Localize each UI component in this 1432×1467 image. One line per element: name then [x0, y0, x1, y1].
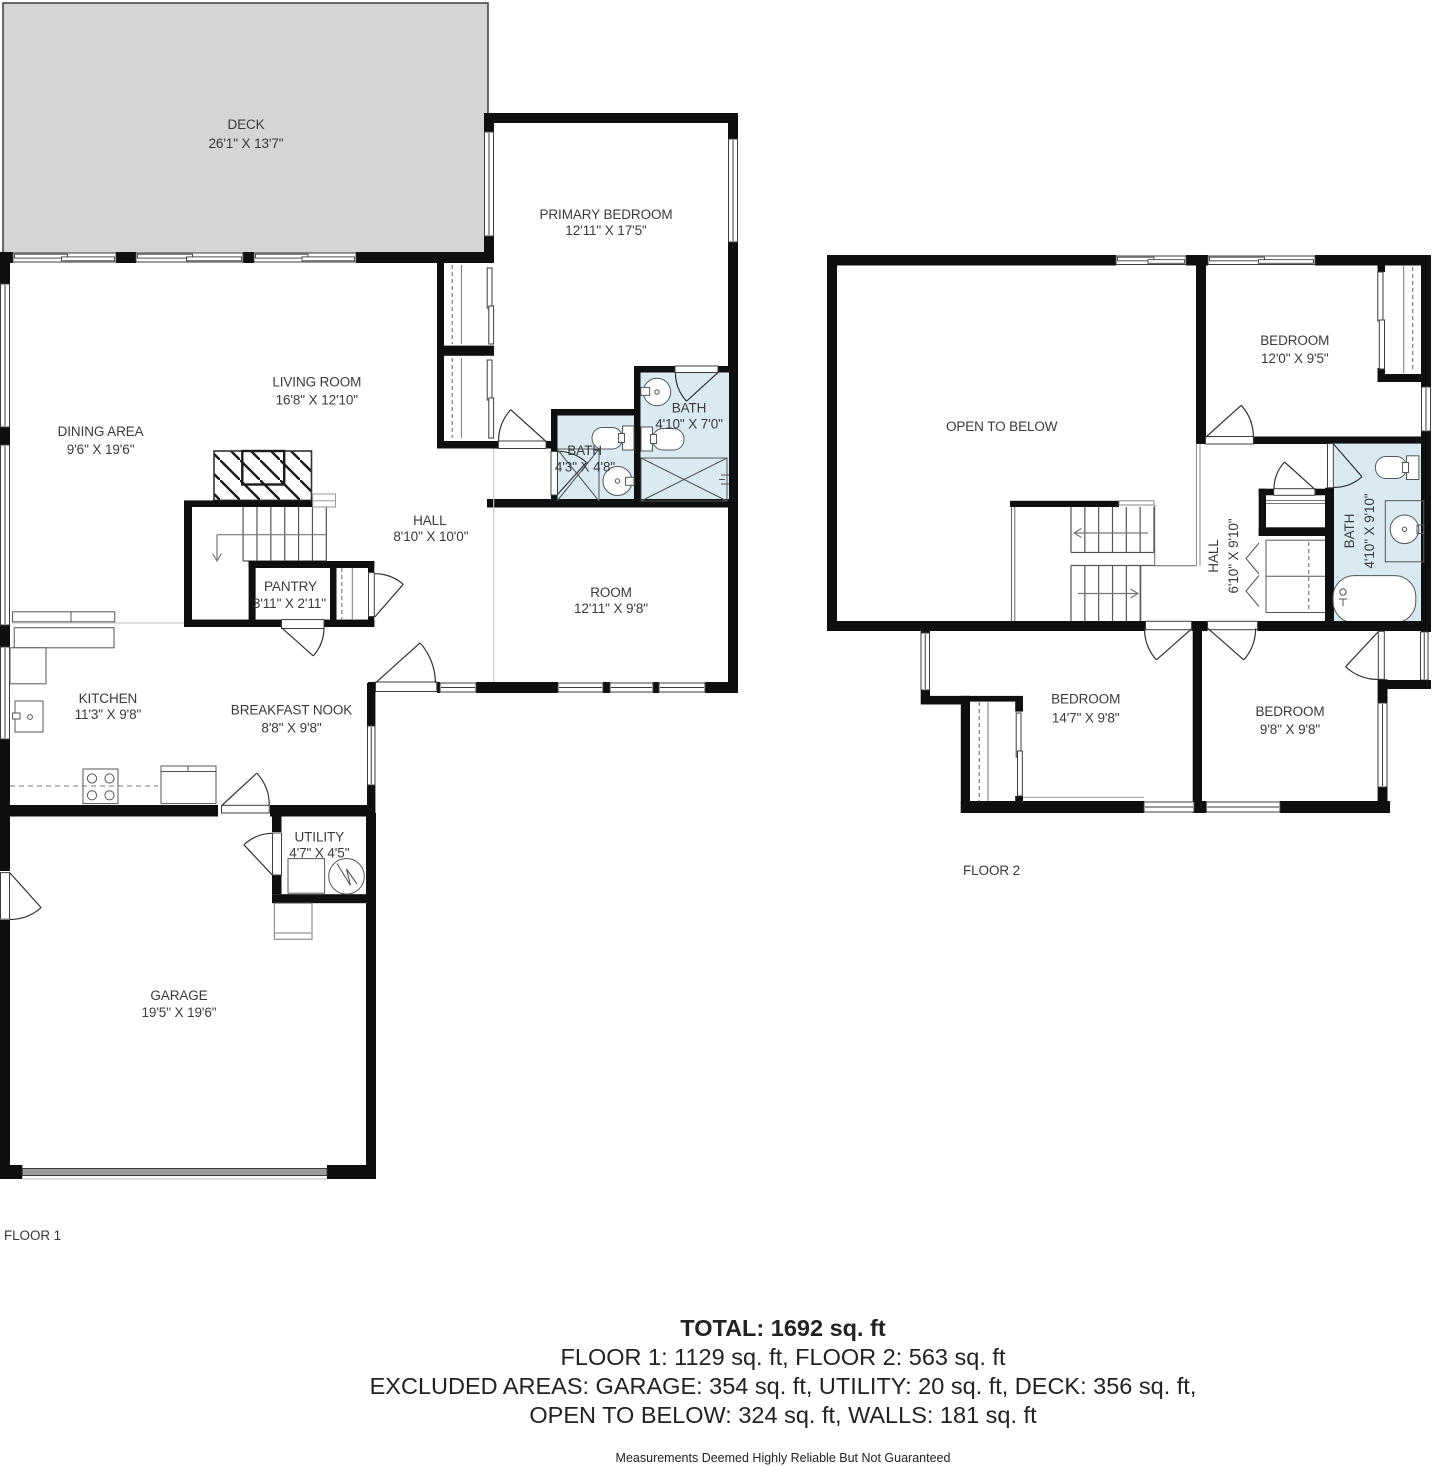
svg-text:ROOM: ROOM: [590, 585, 632, 600]
svg-text:DECK: DECK: [227, 117, 264, 132]
svg-text:12'0" X 9'5": 12'0" X 9'5": [1261, 351, 1329, 366]
svg-text:12'11" X 17'5": 12'11" X 17'5": [565, 223, 647, 238]
svg-text:FLOOR 1: 1129 sq. ft, FLOOR 2:: FLOOR 1: 1129 sq. ft, FLOOR 2: 563 sq. f…: [561, 1344, 1006, 1370]
svg-text:4'7" X 4'5": 4'7" X 4'5": [289, 846, 349, 861]
svg-text:EXCLUDED AREAS: GARAGE: 354 sq: EXCLUDED AREAS: GARAGE: 354 sq. ft, UTIL…: [370, 1373, 1197, 1399]
svg-text:PRIMARY BEDROOM: PRIMARY BEDROOM: [539, 207, 672, 222]
svg-text:19'5" X 19'6": 19'5" X 19'6": [142, 1005, 217, 1020]
svg-text:BEDROOM: BEDROOM: [1051, 692, 1120, 707]
svg-text:HALL: HALL: [1206, 539, 1221, 573]
svg-text:FLOOR 2: FLOOR 2: [963, 863, 1020, 878]
svg-text:BREAKFAST NOOK: BREAKFAST NOOK: [231, 703, 352, 718]
svg-text:UTILITY: UTILITY: [295, 830, 345, 845]
svg-text:8'10" X 10'0": 8'10" X 10'0": [393, 529, 468, 544]
svg-text:BATH: BATH: [672, 401, 707, 416]
svg-text:BATH: BATH: [1342, 514, 1357, 549]
svg-text:26'1" X 13'7": 26'1" X 13'7": [209, 136, 284, 151]
svg-text:BEDROOM: BEDROOM: [1260, 333, 1329, 348]
svg-text:9'8" X 9'8": 9'8" X 9'8": [1260, 722, 1320, 737]
svg-text:4'10" X 7'0": 4'10" X 7'0": [655, 417, 723, 432]
svg-text:16'8" X 12'10": 16'8" X 12'10": [276, 393, 359, 408]
svg-text:LIVING ROOM: LIVING ROOM: [272, 375, 361, 390]
svg-text:8'8" X 9'8": 8'8" X 9'8": [261, 721, 321, 736]
svg-text:4'10" X 9'10": 4'10" X 9'10": [1362, 493, 1377, 568]
svg-text:OPEN TO BELOW: 324 sq. ft, WAL: OPEN TO BELOW: 324 sq. ft, WALLS: 181 sq…: [529, 1402, 1037, 1428]
svg-text:FLOOR 1: FLOOR 1: [4, 1228, 61, 1243]
svg-text:DINING AREA: DINING AREA: [58, 424, 144, 439]
svg-text:OPEN TO BELOW: OPEN TO BELOW: [946, 419, 1058, 434]
svg-text:11'3" X 9'8": 11'3" X 9'8": [75, 707, 142, 722]
svg-text:BATH: BATH: [567, 443, 602, 458]
svg-text:14'7" X 9'8": 14'7" X 9'8": [1052, 711, 1120, 726]
svg-text:3'11" X 2'11": 3'11" X 2'11": [253, 596, 326, 611]
svg-text:TOTAL: 1692 sq. ft: TOTAL: 1692 sq. ft: [680, 1315, 886, 1341]
svg-text:12'11" X 9'8": 12'11" X 9'8": [574, 601, 648, 616]
svg-text:BEDROOM: BEDROOM: [1255, 704, 1324, 719]
svg-text:4'3" X 4'8": 4'3" X 4'8": [555, 460, 615, 475]
svg-text:9'6" X 19'6": 9'6" X 19'6": [67, 442, 135, 457]
svg-text:6'10" X 9'10": 6'10" X 9'10": [1226, 518, 1241, 593]
svg-text:KITCHEN: KITCHEN: [79, 691, 138, 706]
svg-text:Measurements Deemed Highly Rel: Measurements Deemed Highly Reliable But …: [616, 1451, 951, 1465]
svg-text:PANTRY: PANTRY: [264, 579, 317, 594]
svg-text:GARAGE: GARAGE: [150, 988, 207, 1003]
svg-text:HALL: HALL: [413, 513, 447, 528]
